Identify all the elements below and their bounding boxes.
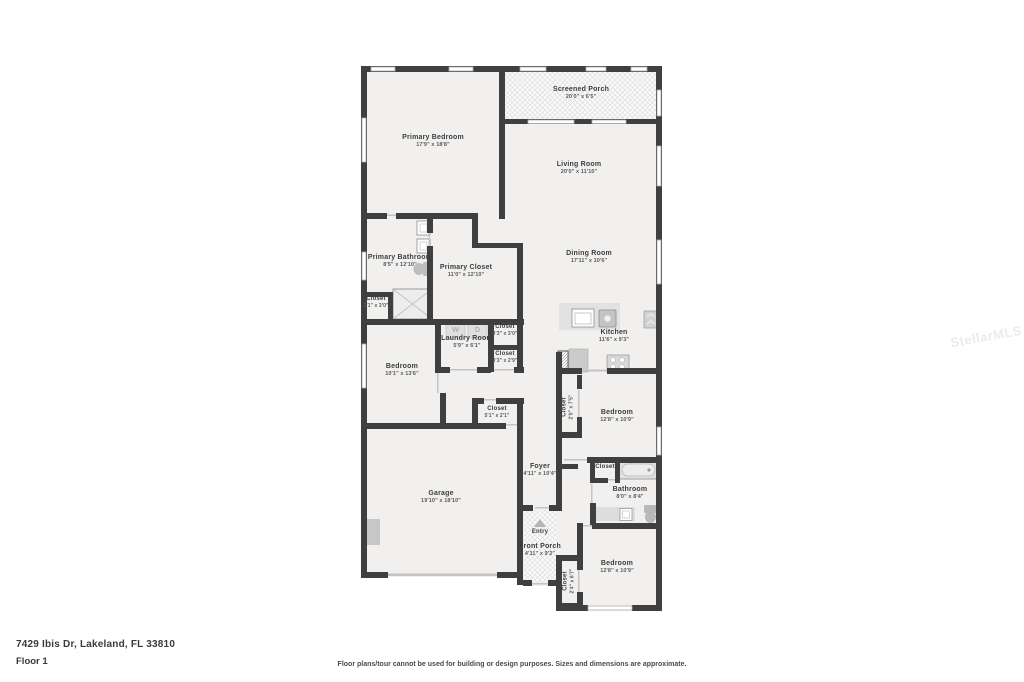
- room-label-bedroom-left: Bedroom 10'1" x 13'6": [385, 363, 419, 378]
- room-name: Bedroom: [385, 363, 419, 371]
- room-name: Bathroom: [613, 486, 648, 494]
- room-dims: 12'8" x 10'9": [600, 568, 634, 575]
- room-dims: 5'1" x 2'1": [485, 413, 510, 419]
- room-name: Closet: [595, 464, 615, 471]
- stove-icon: [599, 310, 616, 327]
- room-name: Closet: [485, 406, 510, 413]
- bathtub-icon: [619, 461, 658, 479]
- room-dims: 8'5" x 12'10": [368, 262, 432, 269]
- room-name: Primary Bathroom: [368, 254, 432, 262]
- room-label-primary-closet: Primary Closet 11'0" x 12'10": [440, 264, 492, 279]
- room-name: Kitchen: [599, 329, 629, 337]
- room-label-living-room: Living Room 20'0" x 11'10": [557, 161, 602, 176]
- floorplan-drawing: [0, 0, 1024, 682]
- room-dims: 20'0" x 11'10": [557, 169, 602, 176]
- washer-label: W: [446, 321, 465, 338]
- room-name: Closet: [364, 296, 389, 303]
- room-label-entry: Entry: [532, 529, 548, 536]
- room-dims: 4'11" x 9'2": [519, 551, 561, 558]
- room-label-foyer: Foyer 4'11" x 10'4": [523, 463, 556, 478]
- room-dims: 2'0" x 7'5": [569, 395, 575, 420]
- room-dims: 17'11" x 10'6": [566, 258, 612, 265]
- room-name: Living Room: [557, 161, 602, 169]
- room-dims: 10'1" x 13'6": [385, 371, 419, 378]
- bathroom-vanity-icon: [595, 507, 635, 521]
- room-dims: 11'6" x 9'3": [599, 337, 629, 344]
- room-label-closet-bed-mid: Closet 2'0" x 7'5": [562, 395, 575, 420]
- room-label-bedroom-bottom: Bedroom 12'8" x 10'9": [600, 560, 634, 575]
- room-label-closet-bed-bottom: Closet 2'4" x 6'7": [563, 569, 576, 594]
- room-name: Dining Room: [566, 250, 612, 258]
- room-label-closet-hall: Closet 5'1" x 2'1": [485, 406, 510, 419]
- room-label-closet-bath: Closet 2'1" x 3'0": [364, 296, 389, 309]
- room-label-closet-a: Closet 3'3" x 3'0": [493, 324, 518, 337]
- room-dims: 11'0" x 12'10": [440, 272, 492, 279]
- room-label-bedroom-mid: Bedroom 12'8" x 10'9": [600, 409, 634, 424]
- room-label-garage: Garage 19'10" x 18'10": [421, 490, 461, 505]
- room-dims: 3'3" x 3'0": [493, 331, 518, 337]
- room-label-front-porch: Front Porch 4'11" x 9'2": [519, 543, 561, 558]
- room-label-primary-bathroom: Primary Bathroom 8'5" x 12'10": [368, 254, 432, 269]
- property-address: 7429 Ibis Dr, Lakeland, FL 33810: [16, 639, 175, 650]
- room-name: Foyer: [523, 463, 556, 471]
- room-dims: 5'9" x 6'1": [441, 343, 493, 350]
- room-dims: 3'3" x 2'9": [493, 358, 518, 364]
- room-label-screened-porch: Screened Porch 20'0" x 6'5": [553, 86, 609, 101]
- disclaimer-text: Floor plans/tour cannot be used for buil…: [0, 661, 1024, 668]
- room-name: Front Porch: [519, 543, 561, 551]
- room-label-bathroom: Bathroom 8'0" x 8'4": [613, 486, 648, 501]
- fridge-icon: [644, 311, 658, 328]
- room-name: Primary Bedroom: [402, 134, 464, 142]
- room-name: Bedroom: [600, 409, 634, 417]
- room-dims: 2'1" x 3'0": [364, 303, 389, 309]
- room-label-dining-room: Dining Room 17'11" x 10'6": [566, 250, 612, 265]
- room-label-kitchen: Kitchen 11'6" x 9'3": [599, 329, 629, 344]
- room-name: Entry: [532, 529, 548, 536]
- room-dims: 20'0" x 6'5": [553, 94, 609, 101]
- room-label-closet-b: Closet 3'3" x 2'9": [493, 351, 518, 364]
- room-label-closet-bath2: Closet: [595, 464, 615, 471]
- room-dims: 2'4" x 6'7": [570, 569, 576, 594]
- room-dims: 17'9" x 18'8": [402, 142, 464, 149]
- toilet-icon-bathroom: [644, 505, 657, 523]
- room-name: Screened Porch: [553, 86, 609, 94]
- room-name: Closet: [562, 395, 569, 420]
- room-name: Bedroom: [600, 560, 634, 568]
- room-name: Closet: [493, 351, 518, 358]
- room-dims: 4'11" x 10'4": [523, 471, 556, 478]
- room-dims: 19'10" x 18'10": [421, 498, 461, 505]
- room-dims: 8'0" x 8'4": [613, 494, 648, 501]
- room-dims: 12'8" x 10'9": [600, 417, 634, 424]
- room-label-primary-bedroom: Primary Bedroom 17'9" x 18'8": [402, 134, 464, 149]
- room-name: Primary Closet: [440, 264, 492, 272]
- floorplan-canvas: Screened Porch 20'0" x 6'5" Primary Bedr…: [0, 0, 1024, 682]
- room-name: Garage: [421, 490, 461, 498]
- room-name: Closet: [493, 324, 518, 331]
- shower-fixture: [393, 289, 432, 319]
- dryer-label: D: [468, 321, 487, 338]
- room-name: Closet: [563, 569, 570, 594]
